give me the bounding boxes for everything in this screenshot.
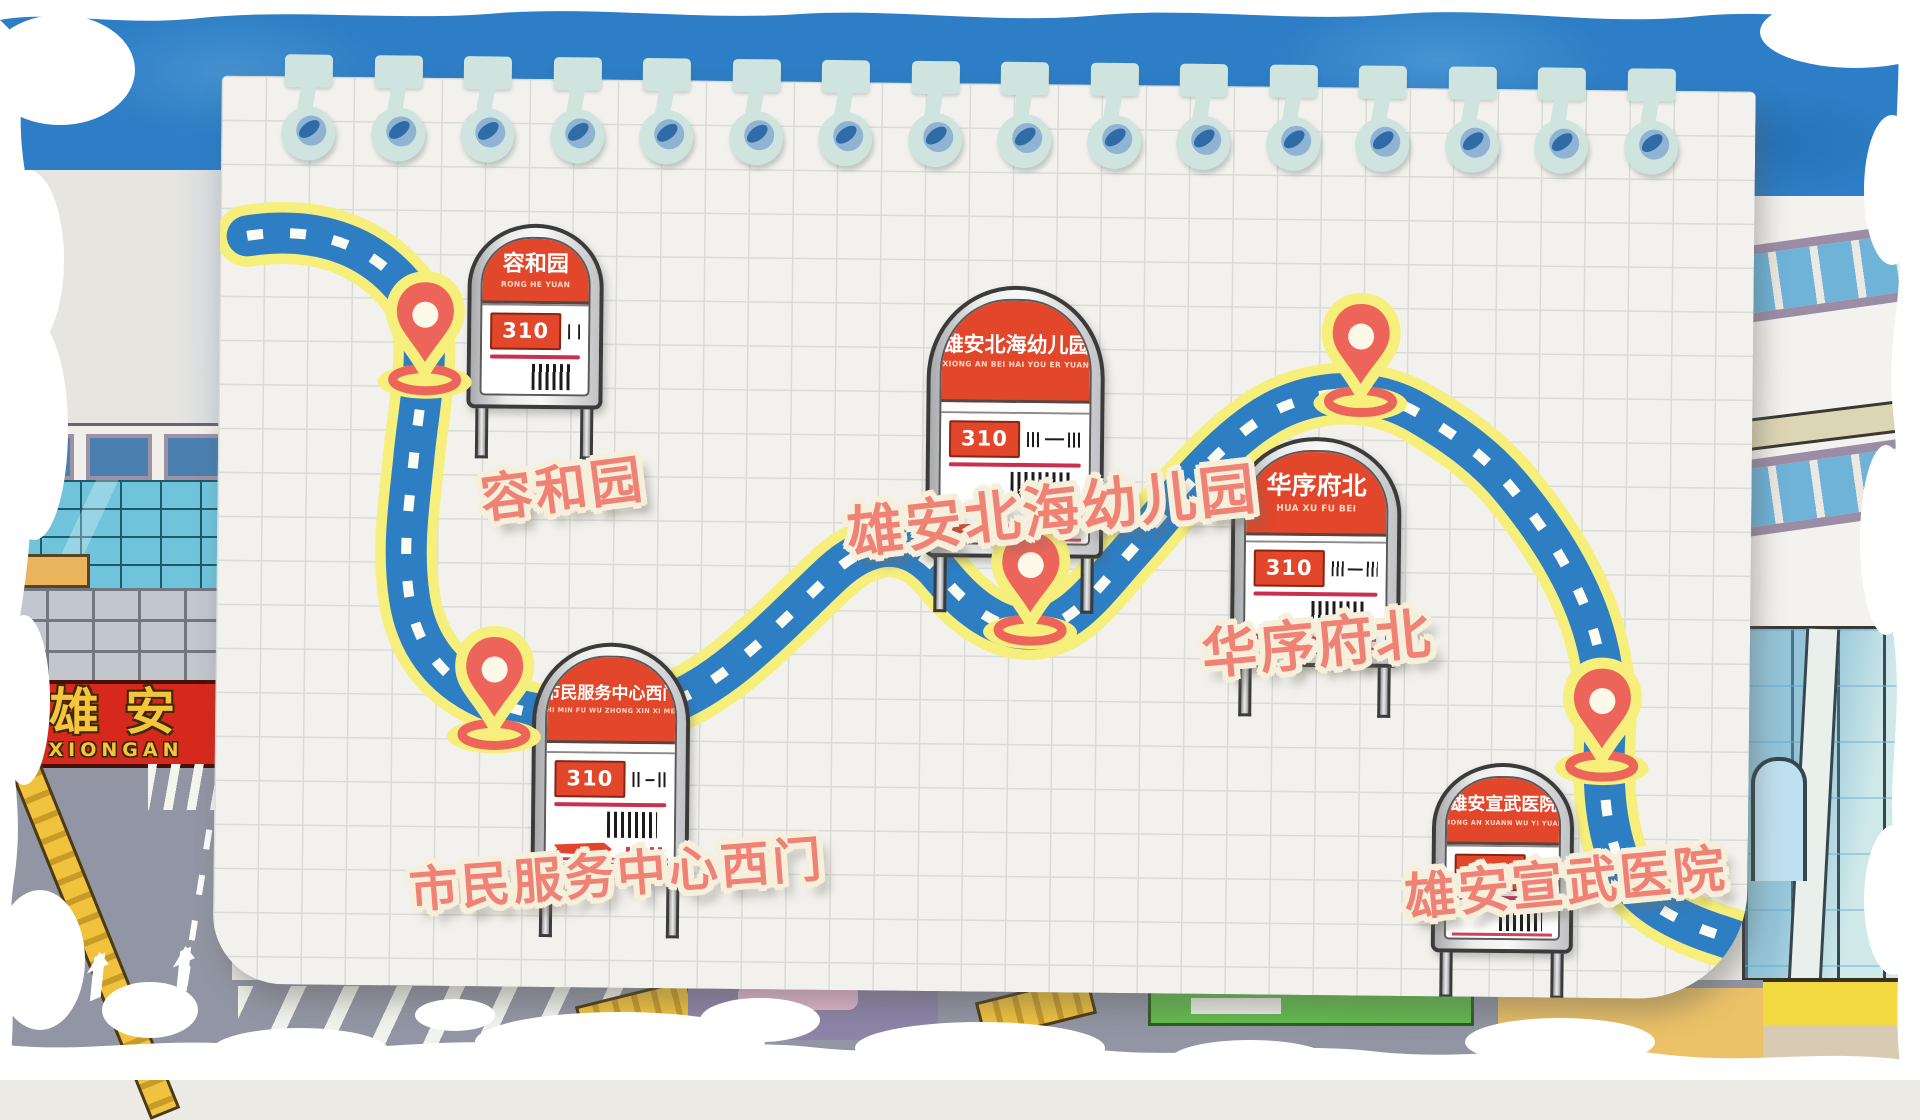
- stop-name: 雄安宣武医院: [1449, 795, 1557, 815]
- plaza-ground: [1498, 988, 1763, 1068]
- arched-window: [1751, 757, 1807, 881]
- panel-facade: [0, 588, 232, 683]
- window-band: [0, 423, 232, 486]
- xiongan-sign-title: 雄安: [31, 687, 201, 737]
- left-station-building: 雄安 XIONGAN: [0, 170, 232, 1080]
- bus-stop-sign-rongheyuan: 容和园 RONG HE YUAN 310: [466, 223, 604, 409]
- stop-name: 市民服务中心西门: [544, 685, 678, 704]
- route-number-badge: 310: [1254, 549, 1325, 587]
- notebook-paper-map: 容和园 RONG HE YUAN 310: [212, 76, 1755, 1000]
- grid-paper-sheet: 容和园 RONG HE YUAN 310: [212, 76, 1755, 1000]
- window: [14, 434, 74, 480]
- stop-pinyin: XIONG AN BEI HAI YOU ER YUAN: [942, 359, 1089, 370]
- window: [86, 434, 152, 480]
- stop-pinyin: RONG HE YUAN: [501, 280, 570, 290]
- xiongan-sign-subtitle: XIONGAN: [49, 739, 184, 761]
- sign-header: 华序府北 HUA XU FU BEI: [1246, 451, 1387, 536]
- ribbon-arrow: [489, 395, 536, 397]
- binding-ring: [1354, 65, 1411, 178]
- window-band: [1733, 434, 1920, 537]
- glass-curtain-wall: [0, 480, 232, 591]
- stop-pinyin: XIONG AN XUANN WU YI YUAN: [1444, 818, 1562, 827]
- street: [0, 768, 232, 1080]
- stop-pinyin: SHI MIN FU WU ZHONG XIN XI MEN: [544, 706, 678, 715]
- sign-header: 雄安宣武医院 XIONG AN XUANN WU YI YUAN: [1447, 777, 1560, 845]
- route-number-badge: 310: [554, 760, 625, 798]
- right-building: [1742, 196, 1920, 1080]
- sign-header: 雄安北海幼儿园 XIONG AN BEI HAI YOU ER YUAN: [941, 300, 1090, 403]
- binding-ring: [1533, 67, 1590, 180]
- location-pin-rongheyuan: [369, 269, 480, 402]
- window-band: [1733, 220, 1920, 323]
- yellow-wall: [1745, 978, 1920, 1030]
- binding-ring: [1175, 64, 1232, 177]
- route-number-badge: 310: [490, 313, 561, 351]
- bus-roof-panel: [1191, 998, 1281, 1014]
- building-wall: [0, 170, 232, 423]
- binding-ring: [370, 55, 427, 168]
- station-entrance: [0, 554, 90, 588]
- binding-ring: [1623, 68, 1680, 181]
- binding-ring: [280, 54, 337, 167]
- stop-name: 容和园: [503, 253, 569, 277]
- binding-ring: [638, 58, 695, 171]
- binding-ring: [1086, 63, 1143, 176]
- binding-ring: [549, 57, 606, 170]
- route-number-badge: 310: [949, 420, 1020, 458]
- sign-header: 市民服务中心西门 SHI MIN FU WU ZHONG XIN XI MEN: [547, 657, 676, 744]
- location-pin-xuanwu-hospital: [1546, 656, 1657, 789]
- binding-ring: [728, 59, 785, 172]
- location-pin-huaxufubei: [1305, 291, 1416, 424]
- binding-ring: [1444, 66, 1501, 179]
- stop-name: 华序府北: [1266, 473, 1366, 500]
- binding-ring: [817, 60, 874, 173]
- binding-ring: [996, 62, 1053, 175]
- location-pin-civic-center: [439, 624, 550, 757]
- binding-ring: [459, 56, 516, 169]
- binding-ring: [907, 61, 964, 174]
- stop-name: 雄安北海幼儿园: [942, 333, 1089, 357]
- sign-header: 容和园 RONG HE YUAN: [482, 238, 589, 304]
- glass-facade: [1745, 626, 1920, 981]
- ground: [1745, 1026, 1920, 1080]
- binding-ring: [1265, 65, 1322, 178]
- stop-pinyin: HUA XU FU BEI: [1276, 503, 1356, 514]
